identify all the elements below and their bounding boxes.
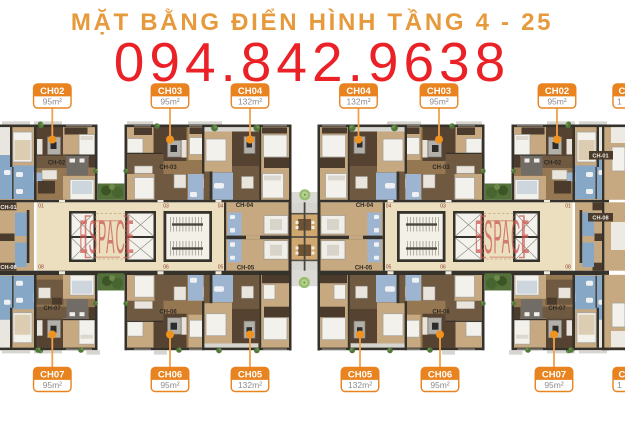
svg-text:132m²: 132m² — [238, 380, 262, 390]
svg-text:08: 08 — [38, 265, 44, 271]
svg-text:05: 05 — [386, 265, 392, 271]
svg-text:1: 1 — [617, 380, 622, 390]
svg-text:CH-08: CH-08 — [592, 216, 608, 222]
svg-text:CH03: CH03 — [427, 86, 451, 97]
svg-text:CH06: CH06 — [158, 370, 182, 381]
svg-text:01: 01 — [565, 204, 571, 210]
svg-text:04: 04 — [386, 204, 392, 210]
svg-text:CH-01: CH-01 — [0, 205, 16, 211]
svg-text:CH04: CH04 — [346, 86, 371, 97]
svg-text:CH-07: CH-07 — [43, 306, 61, 312]
svg-text:CH-06: CH-06 — [159, 310, 177, 316]
svg-text:CH05: CH05 — [238, 370, 263, 381]
svg-text:95m²: 95m² — [429, 97, 449, 107]
svg-text:1: 1 — [617, 97, 622, 107]
svg-text:08: 08 — [565, 265, 571, 271]
svg-text:CH-02: CH-02 — [48, 161, 66, 167]
svg-text:CH-05: CH-05 — [237, 265, 255, 271]
svg-text:CH-04: CH-04 — [236, 203, 254, 209]
svg-text:CH-03: CH-03 — [159, 165, 177, 171]
svg-text:CH-04: CH-04 — [356, 203, 374, 209]
svg-text:132m²: 132m² — [238, 97, 262, 107]
svg-text:CH07: CH07 — [542, 370, 566, 381]
svg-text:CH06: CH06 — [428, 370, 452, 381]
svg-text:CH-03: CH-03 — [432, 165, 450, 171]
svg-text:03: 03 — [440, 204, 446, 210]
svg-text:CH02: CH02 — [40, 86, 64, 97]
svg-text:CH-06: CH-06 — [432, 310, 450, 316]
svg-text:132m²: 132m² — [346, 97, 370, 107]
svg-text:95m²: 95m² — [160, 97, 180, 107]
svg-text:CH-08: CH-08 — [0, 265, 16, 271]
svg-text:CH-05: CH-05 — [355, 265, 373, 271]
svg-text:95m²: 95m² — [547, 97, 567, 107]
svg-text:CH07: CH07 — [40, 370, 64, 381]
svg-text:01: 01 — [38, 204, 44, 210]
svg-text:ESPACE: ESPACE — [475, 212, 530, 264]
svg-text:04: 04 — [218, 204, 224, 210]
svg-text:CH-01: CH-01 — [592, 154, 608, 160]
svg-text:03: 03 — [163, 204, 169, 210]
svg-text:05: 05 — [218, 265, 224, 271]
svg-text:CH04: CH04 — [238, 86, 263, 97]
svg-text:CH-02: CH-02 — [544, 161, 562, 167]
svg-text:CH03: CH03 — [158, 86, 182, 97]
svg-text:95m²: 95m² — [43, 97, 63, 107]
svg-text:132m²: 132m² — [348, 380, 372, 390]
svg-text:06: 06 — [163, 265, 169, 271]
svg-text:95m²: 95m² — [544, 380, 564, 390]
svg-text:ESPACE: ESPACE — [79, 212, 134, 264]
svg-text:C: C — [619, 370, 625, 381]
svg-text:CH02: CH02 — [545, 86, 569, 97]
svg-text:06: 06 — [440, 265, 446, 271]
svg-text:95m²: 95m² — [43, 380, 63, 390]
svg-text:CH-07: CH-07 — [548, 306, 566, 312]
svg-text:95m²: 95m² — [160, 380, 180, 390]
svg-text:95m²: 95m² — [430, 380, 450, 390]
svg-text:C: C — [619, 86, 625, 97]
svg-text:CH05: CH05 — [348, 370, 373, 381]
